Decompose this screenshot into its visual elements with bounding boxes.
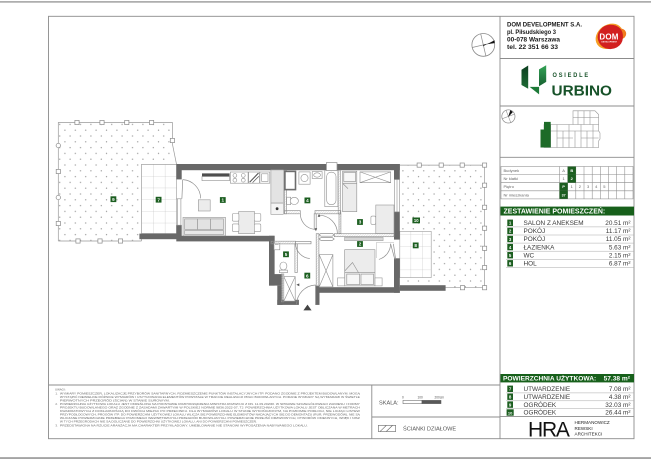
svg-text:3.: 3. — [55, 423, 58, 427]
svg-text:OGRÓDEK: OGRÓDEK — [524, 408, 557, 417]
svg-text:PRZEDSTAWIONA NA RZUCIE ARANŻA: PRZEDSTAWIONA NA RZUCIE ARANŻACJA MA CHA… — [60, 422, 308, 427]
svg-text:WC: WC — [524, 252, 535, 259]
svg-text:200cm: 200cm — [435, 396, 445, 400]
svg-text:100: 100 — [418, 396, 424, 400]
svg-text:DEVELOPMENT: DEVELOPMENT — [602, 42, 618, 44]
svg-text:DOM DEVELOPMENT S.A.: DOM DEVELOPMENT S.A. — [507, 22, 582, 29]
svg-text:SKALA:: SKALA: — [379, 401, 399, 407]
svg-text:Piętro: Piętro — [504, 184, 515, 189]
svg-text:57.38 m²: 57.38 m² — [604, 376, 631, 383]
svg-text:8: 8 — [414, 243, 417, 248]
svg-text:P: P — [562, 184, 565, 189]
svg-text:SALON Z ANEKSEM: SALON Z ANEKSEM — [524, 220, 584, 227]
svg-text:pl. Piłsudskiego 3: pl. Piłsudskiego 3 — [507, 29, 556, 36]
svg-text:POWIERZCHNIA UŻYTKOWA:: POWIERZCHNIA UŻYTKOWA: — [503, 375, 596, 383]
svg-text:9: 9 — [112, 197, 115, 202]
svg-text:1.: 1. — [55, 391, 58, 395]
svg-text:3: 3 — [359, 220, 362, 225]
svg-text:32.03 m²: 32.03 m² — [605, 402, 630, 409]
svg-text:A: A — [562, 168, 565, 173]
svg-text:1: 1 — [562, 176, 565, 181]
svg-text:0: 0 — [402, 396, 404, 400]
svg-text:11.05 m²: 11.05 m² — [606, 236, 631, 243]
svg-text:UTWARDZENIE: UTWARDZENIE — [524, 394, 571, 401]
svg-text:URBINO: URBINO — [552, 84, 613, 100]
svg-text:5: 5 — [603, 184, 606, 189]
svg-text:7: 7 — [157, 197, 160, 202]
svg-text:4: 4 — [306, 198, 309, 203]
svg-text:1: 1 — [571, 184, 574, 189]
svg-text:10: 10 — [508, 410, 513, 415]
svg-text:HOL: HOL — [524, 261, 538, 268]
svg-text:4.38 m²: 4.38 m² — [609, 394, 631, 401]
svg-text:Nr mieszkania: Nr mieszkania — [504, 192, 530, 197]
svg-text:6.87 m²: 6.87 m² — [609, 261, 631, 268]
svg-text:3: 3 — [587, 184, 590, 189]
svg-text:POKÓJ: POKÓJ — [524, 226, 546, 235]
svg-text:B: B — [570, 168, 573, 173]
svg-text:ARCHITEKCI: ARCHITEKCI — [575, 431, 603, 436]
svg-text:5: 5 — [285, 252, 288, 257]
svg-text:Budynek: Budynek — [504, 168, 520, 173]
svg-text:HRA: HRA — [528, 419, 570, 442]
svg-text:37: 37 — [562, 193, 566, 197]
svg-text:5.63 m²: 5.63 m² — [609, 244, 631, 251]
svg-text:4: 4 — [595, 184, 598, 189]
svg-text:ŁAZIENKA: ŁAZIENKA — [524, 244, 556, 251]
svg-text:OGRÓDEK: OGRÓDEK — [524, 400, 557, 409]
svg-text:2: 2 — [579, 184, 582, 189]
svg-text:26.44 m²: 26.44 m² — [605, 410, 630, 417]
svg-text:6: 6 — [306, 273, 309, 278]
svg-text:UTWARDZENIE: UTWARDZENIE — [524, 386, 571, 393]
svg-text:1: 1 — [222, 198, 225, 203]
svg-text:00-078 Warszawa: 00-078 Warszawa — [507, 37, 560, 44]
svg-text:11.17 m²: 11.17 m² — [606, 228, 631, 235]
svg-text:POKÓJ: POKÓJ — [524, 234, 546, 243]
svg-text:2: 2 — [359, 242, 362, 247]
svg-text:Nr klatki: Nr klatki — [504, 176, 519, 181]
svg-text:ŚCIANKI DZIAŁOWE: ŚCIANKI DZIAŁOWE — [403, 425, 456, 433]
svg-text:tel. 22 351 66 33: tel. 22 351 66 33 — [507, 44, 558, 51]
svg-text:20.51 m²: 20.51 m² — [605, 220, 630, 227]
svg-text:HERMANOWICZ: HERMANOWICZ — [575, 420, 610, 425]
svg-text:DOM: DOM — [599, 33, 618, 42]
svg-text:OSIEDLE: OSIEDLE — [553, 72, 591, 79]
svg-text:2.: 2. — [55, 402, 58, 406]
svg-text:REWSKI: REWSKI — [575, 426, 593, 431]
svg-text:ZESTAWIENIE POMIESZCZEŃ:: ZESTAWIENIE POMIESZCZEŃ: — [504, 207, 606, 216]
svg-text:10: 10 — [414, 218, 419, 223]
svg-text:7.08 m²: 7.08 m² — [609, 386, 631, 393]
svg-text:2.15 m²: 2.15 m² — [609, 252, 631, 259]
